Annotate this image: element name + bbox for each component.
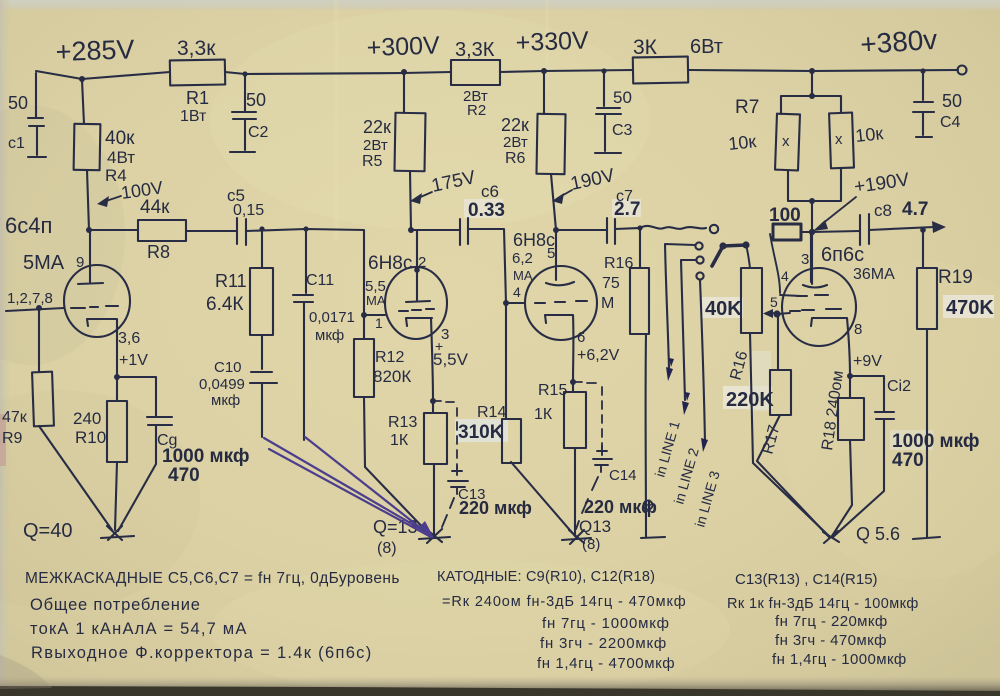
svg-text:1Вт: 1Вт bbox=[180, 108, 207, 125]
svg-text:МА: МА bbox=[366, 293, 386, 308]
svg-text:220 мкф: 220 мкф bbox=[584, 497, 657, 517]
svg-text:2Вт: 2Вт bbox=[363, 137, 388, 154]
svg-text:40к: 40к bbox=[105, 128, 135, 149]
svg-text:fн 3гч - 470мкф: fн 3гч - 470мкф bbox=[775, 632, 887, 649]
svg-text:М: М bbox=[601, 295, 614, 312]
svg-text:Q 5.6: Q 5.6 bbox=[856, 524, 900, 544]
svg-text:4: 4 bbox=[513, 284, 521, 300]
svg-text:с1: с1 bbox=[8, 135, 25, 152]
svg-text:0,0499: 0,0499 bbox=[199, 376, 245, 393]
svg-text:0.33: 0.33 bbox=[468, 200, 505, 221]
svg-text:R15: R15 bbox=[538, 382, 567, 399]
svg-text:fн 1,4гц - 4700мкф: fн 1,4гц - 4700мкф bbox=[537, 655, 675, 672]
svg-text:R9: R9 bbox=[2, 430, 23, 447]
svg-text:6.4К: 6.4К bbox=[206, 294, 243, 315]
svg-text:=Rк 240ом fн-3дБ 14гц - 470мкф: =Rк 240ом fн-3дБ 14гц - 470мкф bbox=[442, 594, 687, 610]
svg-text:310K: 310K bbox=[458, 422, 504, 443]
svg-text:10к: 10к bbox=[727, 131, 757, 154]
svg-text:36МА: 36МА bbox=[853, 266, 895, 283]
svg-text:МЕЖКАСКАДНЫЕ С5,С6,С7 = fн 7гц: МЕЖКАСКАДНЫЕ С5,С6,С7 = fн 7гц, 0дБурове… bbox=[25, 570, 400, 587]
svg-text:+1V: +1V bbox=[119, 352, 148, 369]
svg-text:100: 100 bbox=[769, 205, 801, 226]
svg-text:R8: R8 bbox=[147, 242, 170, 262]
svg-text:75: 75 bbox=[602, 275, 620, 292]
svg-text:9: 9 bbox=[76, 254, 84, 271]
svg-text:+380v: +380v bbox=[859, 24, 938, 60]
svg-text:6Н8с: 6Н8с bbox=[368, 253, 412, 274]
svg-text:6,2: 6,2 bbox=[512, 250, 533, 267]
svg-text:R10: R10 bbox=[75, 428, 106, 447]
svg-text:1000 мкф: 1000 мкф bbox=[162, 446, 250, 467]
svg-text:fн 3гч - 2200мкф: fн 3гч - 2200мкф bbox=[540, 635, 667, 652]
svg-text:10к: 10к bbox=[854, 123, 884, 146]
svg-text:6п6с: 6п6с bbox=[821, 244, 864, 266]
svg-text:х: х bbox=[782, 133, 790, 150]
svg-text:+300V: +300V bbox=[366, 31, 440, 62]
svg-text:fн 7гц - 220мкф: fн 7гц - 220мкф bbox=[775, 613, 888, 630]
svg-text:470K: 470K bbox=[946, 297, 994, 319]
svg-text:50: 50 bbox=[246, 90, 266, 110]
svg-text:(8): (8) bbox=[377, 540, 397, 557]
svg-text:С14: С14 bbox=[609, 467, 637, 484]
svg-text:1К: 1К bbox=[534, 406, 553, 423]
svg-text:240: 240 bbox=[73, 409, 101, 428]
svg-text:3: 3 bbox=[801, 251, 809, 268]
svg-text:+9V: +9V bbox=[853, 353, 882, 370]
svg-text:мкф: мкф bbox=[315, 327, 344, 344]
svg-text:R13: R13 bbox=[388, 414, 417, 431]
svg-text:Rвыходное Ф.корректора = 1.4к: Rвыходное Ф.корректора = 1.4к (6п6с) bbox=[31, 644, 373, 662]
svg-text:R16: R16 bbox=[604, 255, 633, 272]
svg-text:Q13: Q13 bbox=[579, 517, 611, 536]
svg-text:С11: С11 bbox=[306, 272, 334, 289]
svg-text:+285V: +285V bbox=[55, 34, 135, 67]
svg-text:МА: МА bbox=[513, 268, 533, 283]
svg-text:fн 1,4гц - 1000мкф: fн 1,4гц - 1000мкф bbox=[772, 651, 907, 668]
svg-text:х: х bbox=[835, 131, 843, 148]
svg-text:С13(R13) , С14(R15): С13(R13) , С14(R15) bbox=[735, 571, 878, 588]
svg-text:2: 2 bbox=[418, 254, 426, 271]
svg-text:0,0171: 0,0171 bbox=[309, 309, 355, 326]
svg-text:+330V: +330V bbox=[515, 26, 589, 57]
svg-text:Rк 1к fн-3дБ 14гц - 100мкф: Rк 1к fн-3дБ 14гц - 100мкф bbox=[727, 596, 919, 612]
svg-text:R14: R14 bbox=[477, 404, 506, 421]
svg-text:44к: 44к bbox=[140, 197, 170, 218]
svg-text:1К: 1К bbox=[390, 432, 409, 449]
svg-text:fн 7гц - 1000мкф: fн 7гц - 1000мкф bbox=[542, 615, 670, 632]
svg-text:50: 50 bbox=[613, 88, 632, 107]
svg-text:4: 4 bbox=[781, 268, 789, 284]
svg-text:Сi2: Сi2 bbox=[887, 378, 911, 395]
svg-text:С2: С2 bbox=[248, 124, 269, 141]
svg-text:С4: С4 bbox=[940, 114, 961, 131]
svg-text:с8: с8 bbox=[874, 201, 892, 220]
svg-text:R12: R12 bbox=[375, 349, 404, 366]
svg-text:3К: 3К bbox=[633, 36, 658, 59]
svg-text:Q=40: Q=40 bbox=[23, 520, 72, 542]
svg-text:220 мкф: 220 мкф bbox=[459, 498, 532, 518]
svg-text:470: 470 bbox=[168, 465, 200, 486]
svg-text:КАТОДНЫЕ: С9(R10), С12(R18): КАТОДНЫЕ: С9(R10), С12(R18) bbox=[437, 569, 655, 585]
svg-text:4.7: 4.7 bbox=[902, 199, 928, 220]
svg-text:2Вт: 2Вт bbox=[503, 134, 528, 151]
svg-text:С10: С10 bbox=[214, 359, 242, 376]
svg-text:47к: 47к bbox=[2, 409, 28, 426]
svg-text:3,3К: 3,3К bbox=[455, 39, 495, 61]
svg-text:3,6: 3,6 bbox=[118, 330, 140, 347]
svg-text:0,15: 0,15 bbox=[233, 202, 264, 219]
svg-text:1,2,7,8: 1,2,7,8 bbox=[7, 290, 53, 307]
svg-text:с6: с6 bbox=[481, 182, 499, 201]
svg-text:R6: R6 bbox=[505, 150, 526, 167]
svg-text:5: 5 bbox=[770, 294, 778, 310]
svg-text:1000 мкф: 1000 мкф bbox=[892, 431, 980, 452]
svg-text:С3: С3 bbox=[612, 122, 633, 139]
svg-text:4Вт: 4Вт bbox=[107, 148, 135, 167]
svg-text:R2: R2 bbox=[467, 102, 486, 119]
svg-text:6с4п: 6с4п bbox=[5, 213, 52, 238]
svg-text:+6,2V: +6,2V bbox=[577, 347, 620, 364]
svg-text:8: 8 bbox=[854, 321, 862, 338]
svg-text:R19: R19 bbox=[938, 267, 973, 288]
svg-text:Общее потребление: Общее потребление bbox=[30, 596, 201, 614]
svg-text:22к: 22к bbox=[363, 117, 391, 137]
svg-text:R5: R5 bbox=[362, 153, 383, 170]
svg-text:R1: R1 bbox=[186, 88, 209, 108]
svg-text:5: 5 bbox=[547, 245, 555, 262]
svg-text:50: 50 bbox=[8, 93, 28, 113]
svg-text:3,3к: 3,3к bbox=[177, 37, 216, 60]
svg-text:(8): (8) bbox=[582, 536, 600, 553]
svg-text:820К: 820К bbox=[373, 367, 411, 386]
svg-text:50: 50 bbox=[942, 91, 962, 111]
svg-text:токА 1 кАнАлА = 54,7 мА: токА 1 кАнАлА = 54,7 мА bbox=[30, 620, 248, 638]
svg-text:6Вт: 6Вт bbox=[690, 36, 723, 58]
svg-text:5,5V: 5,5V bbox=[433, 350, 469, 369]
svg-text:22к: 22к bbox=[501, 115, 529, 135]
svg-text:2.7: 2.7 bbox=[614, 199, 640, 220]
svg-text:мкф: мкф bbox=[211, 392, 240, 409]
svg-text:1: 1 bbox=[375, 315, 383, 331]
svg-text:R11: R11 bbox=[215, 271, 247, 291]
svg-text:5МА: 5МА bbox=[23, 252, 65, 274]
svg-text:6: 6 bbox=[577, 329, 585, 346]
svg-text:470: 470 bbox=[892, 450, 924, 471]
svg-text:40K: 40K bbox=[705, 298, 742, 320]
svg-text:220K: 220K bbox=[726, 389, 774, 411]
svg-text:R7: R7 bbox=[735, 97, 759, 118]
